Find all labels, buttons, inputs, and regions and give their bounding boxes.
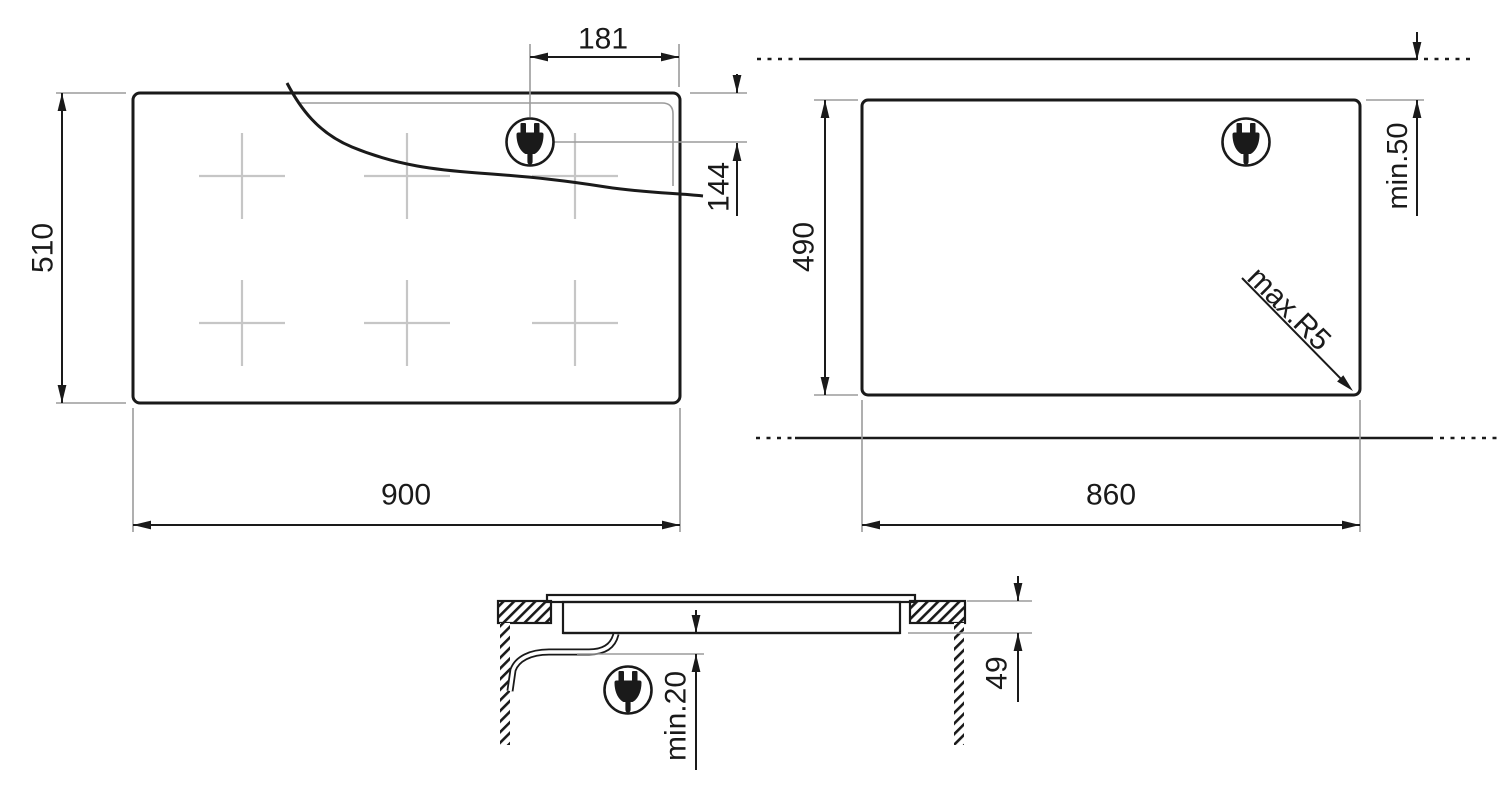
dim-arrow [1014,633,1023,651]
dim-maxr5-label: max.R5 [1241,261,1337,357]
dim-181-label: 181 [578,23,628,56]
dim-arrow [692,615,701,633]
mains-cable-core [510,634,616,691]
dim-arrow [530,53,548,62]
break-line [287,83,703,196]
power-plug-icon [1223,119,1270,166]
dim-arrow [58,93,67,111]
power-plug-icon [507,119,554,166]
dim-arrow [58,385,67,403]
worktop-cutout-view: 490 min.50 max.R5 860 [756,32,1500,532]
cooking-zone-cross [364,133,450,219]
cooking-zone-marks [199,133,618,366]
installation-diagram: 181 144 510 900 [0,0,1500,800]
dim-arrow [1413,100,1422,118]
dim-490-label: 490 [788,222,821,272]
worktop-section-left [498,601,551,623]
dim-arrow [692,654,701,672]
dim-510-label: 510 [27,223,60,273]
dim-arrow [733,75,742,93]
glass-top-plate [547,595,915,602]
dim-min50-label: min.50 [1382,122,1414,209]
dim-arrow [1014,583,1023,601]
dim-arrow [1413,42,1422,60]
installation-section-view: min.20 49 [498,576,1032,770]
cooking-zone-cross [364,280,450,366]
dim-min20-label: min.20 [660,671,693,761]
cooking-zone-cross [532,280,618,366]
dim-arrow [862,521,880,530]
hob-body-section [563,602,900,633]
hob-top-view: 181 144 510 900 [27,23,748,533]
dim-arrow [661,53,679,62]
dim-arrow [821,100,830,118]
dim-arrow [133,521,151,530]
worktop-section-right [910,601,965,623]
dim-arrow [1342,521,1360,530]
dim-144-label: 144 [703,162,736,212]
dim-900-label: 900 [381,479,431,512]
cooking-zone-cross [199,280,285,366]
dim-arrow [733,143,742,161]
power-plug-icon [605,667,652,714]
dim-860-label: 860 [1086,479,1136,512]
dim-arrow [821,377,830,395]
dim-49-label: 49 [981,656,1014,689]
dim-arrow [662,521,680,530]
diagram-canvas: 181 144 510 900 [0,0,1500,800]
cutout-outline [862,100,1360,395]
cabinet-side-right [954,623,964,745]
mains-cable-outline [510,634,616,691]
cooking-zone-cross [199,133,285,219]
